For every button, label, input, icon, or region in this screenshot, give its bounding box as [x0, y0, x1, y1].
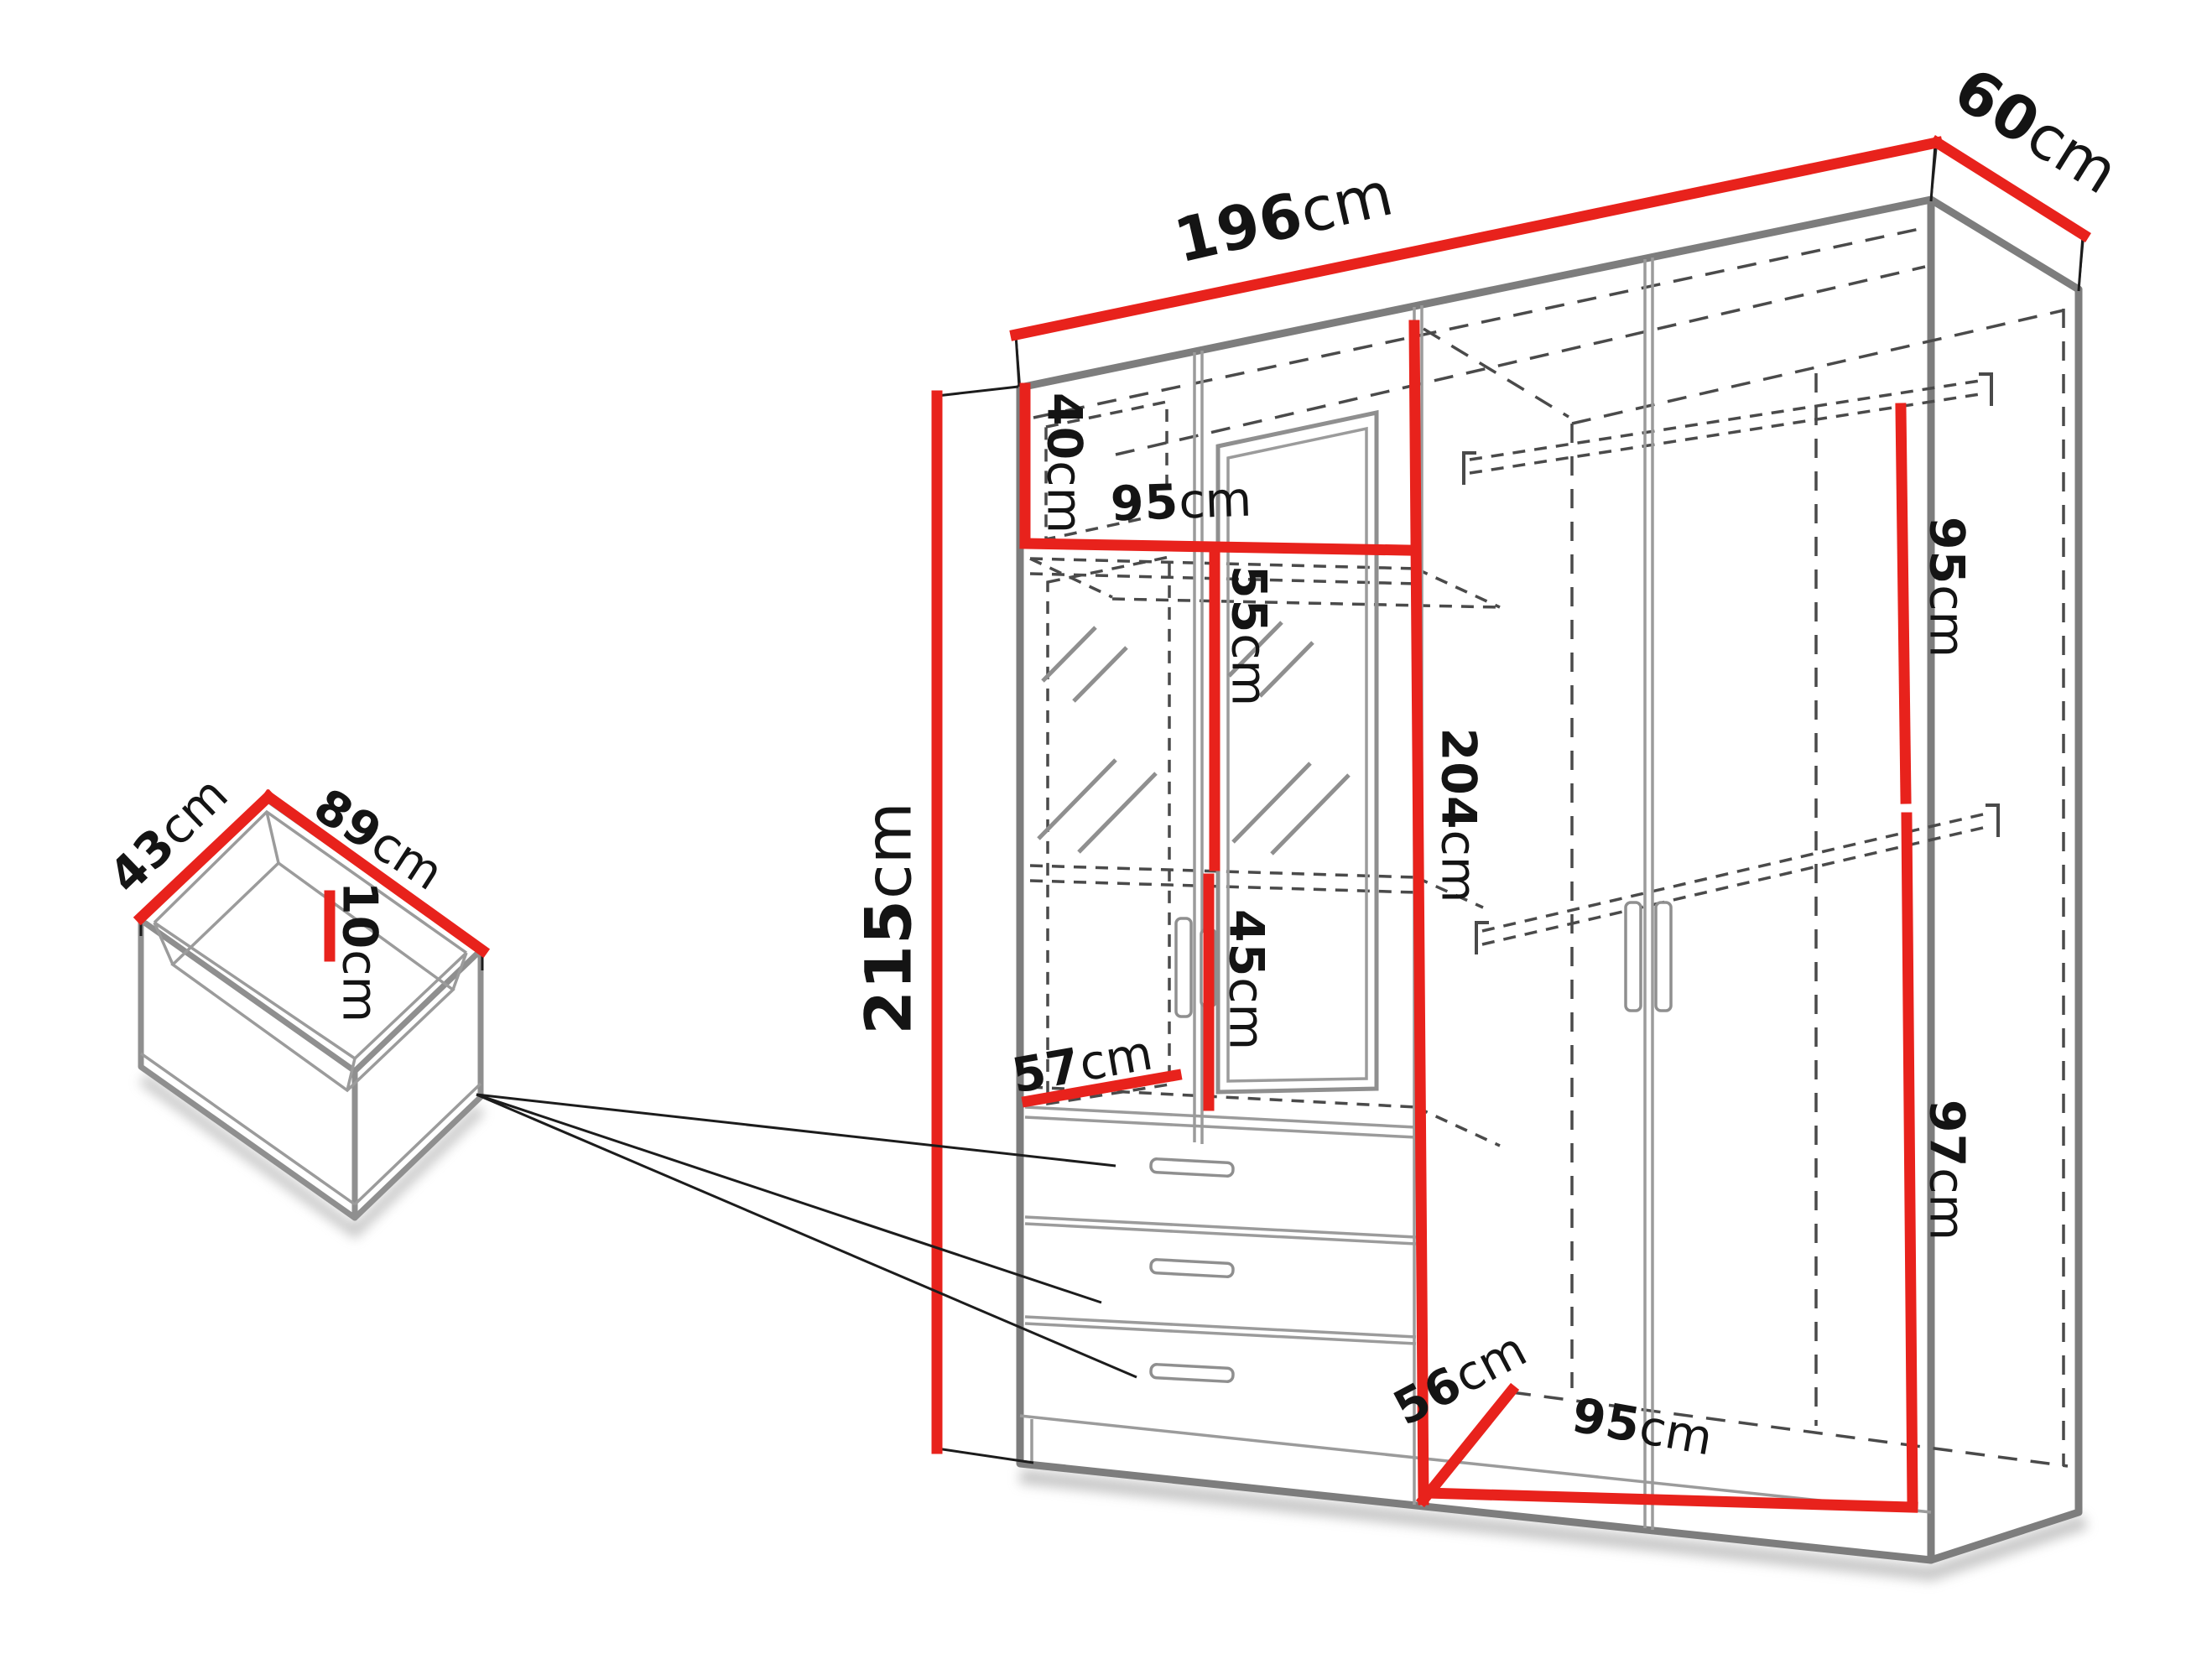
drawer-inner-height-dimension-label: 10cm — [331, 882, 387, 1022]
right-door-handle-2 — [1656, 902, 1671, 1011]
right-lower-dimension-label: 97cm — [1918, 1100, 1974, 1240]
wardrobe-side-panel — [1931, 200, 2079, 1560]
right-lower-dimension-line — [1907, 818, 1913, 1503]
lower-left-dimension-label: 45cm — [1218, 909, 1273, 1050]
right-upper-dimension-line — [1901, 408, 1906, 798]
drawer-leader-line-2 — [476, 1095, 1101, 1303]
drawer-handle-2 — [1151, 1259, 1234, 1277]
top-shelf-dimension-label: 95cm — [1110, 472, 1252, 533]
left-door-handle — [1176, 918, 1191, 1017]
furniture-dimension-diagram: 196cm 60cm 215cm 40cm 95cm 55cm 45cm 57c… — [0, 0, 2212, 1659]
drawer-handle-3 — [1151, 1364, 1234, 1381]
upper-left-dimension-label: 55cm — [1221, 565, 1276, 706]
top-compartment-dimension-label: 40cm — [1036, 393, 1091, 533]
wardrobe-body — [1016, 143, 2084, 1560]
height-dimension-label: 215cm — [851, 802, 925, 1034]
drawer-diagram: 43cm 89cm 10cm — [99, 767, 1137, 1377]
interior-height-dimension-label: 204cm — [1430, 728, 1486, 903]
drawer-handle-1 — [1151, 1158, 1234, 1176]
right-door-handle-1 — [1626, 902, 1641, 1011]
right-upper-dimension-label: 95cm — [1918, 517, 1974, 658]
wardrobe-diagram: 196cm 60cm 215cm 40cm 95cm 55cm 45cm 57c… — [851, 54, 2130, 1573]
height-extension-top — [937, 387, 1018, 396]
